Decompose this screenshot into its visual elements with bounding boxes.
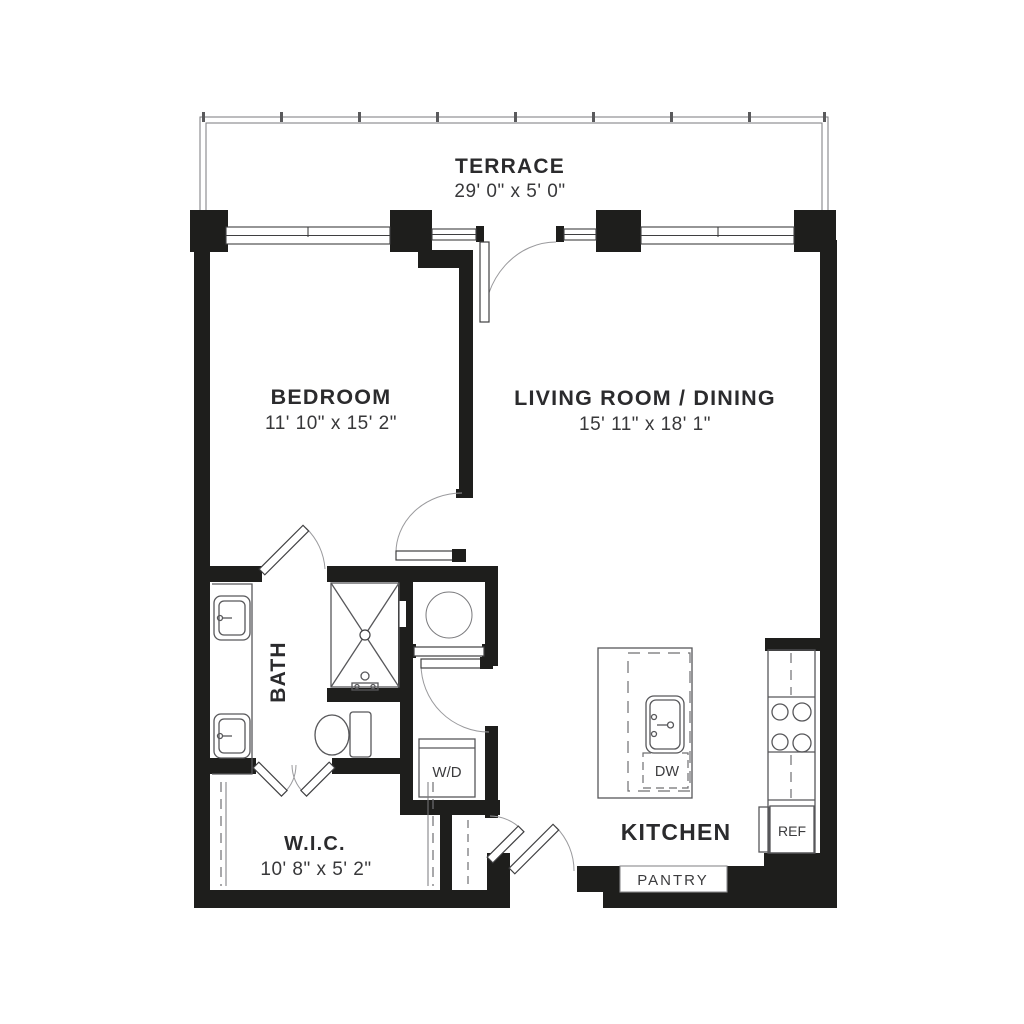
water-heater xyxy=(426,592,472,638)
floor-plan: TERRACE 29' 0" x 5' 0" BEDROOM 11' 10" x… xyxy=(0,0,1024,1024)
living-room-window xyxy=(641,227,794,244)
bedroom-dims: 11' 10" x 15' 2" xyxy=(265,413,397,434)
vanity-counter xyxy=(212,584,252,774)
pantry-label: PANTRY xyxy=(637,872,708,889)
kitchen-label: KITCHEN xyxy=(621,819,732,845)
doors xyxy=(253,242,574,874)
bath-label: BATH xyxy=(267,641,290,703)
terrace-door xyxy=(480,242,556,322)
toilet xyxy=(315,712,371,757)
interior-walls xyxy=(194,250,820,892)
terrace-door-sidelites xyxy=(432,229,596,240)
windows xyxy=(226,227,794,244)
washer-dryer-label: W/D xyxy=(432,764,461,781)
refrigerator-label: REF xyxy=(778,823,806,839)
bedroom-door xyxy=(396,493,466,562)
terrace-dims: 29' 0" x 5' 0" xyxy=(454,181,565,202)
bedroom-label: BEDROOM xyxy=(271,385,392,409)
terrace-label: TERRACE xyxy=(455,155,565,178)
utility-closet-slider xyxy=(409,644,489,658)
stove-burners xyxy=(772,703,811,752)
living-dining-label: LIVING ROOM / DINING xyxy=(514,386,776,410)
bath-door xyxy=(259,525,325,574)
wic-double-doors xyxy=(253,762,335,796)
wic-dims: 10' 8" x 5' 2" xyxy=(260,859,371,880)
dishwasher-label: DW xyxy=(655,764,679,780)
exterior-walls xyxy=(190,210,837,908)
bedroom-window xyxy=(226,227,390,244)
vanity-sink-2 xyxy=(214,714,250,758)
vanity-sink-1 xyxy=(214,596,250,640)
hall-door xyxy=(421,657,493,732)
floor-plan-page: TERRACE 29' 0" x 5' 0" BEDROOM 11' 10" x… xyxy=(0,0,1024,1024)
wic-label: W.I.C. xyxy=(284,833,346,855)
labels: TERRACE 29' 0" x 5' 0" BEDROOM 11' 10" x… xyxy=(260,155,806,889)
living-dining-dims: 15' 11" x 18' 1" xyxy=(579,414,711,435)
shower xyxy=(331,583,399,690)
